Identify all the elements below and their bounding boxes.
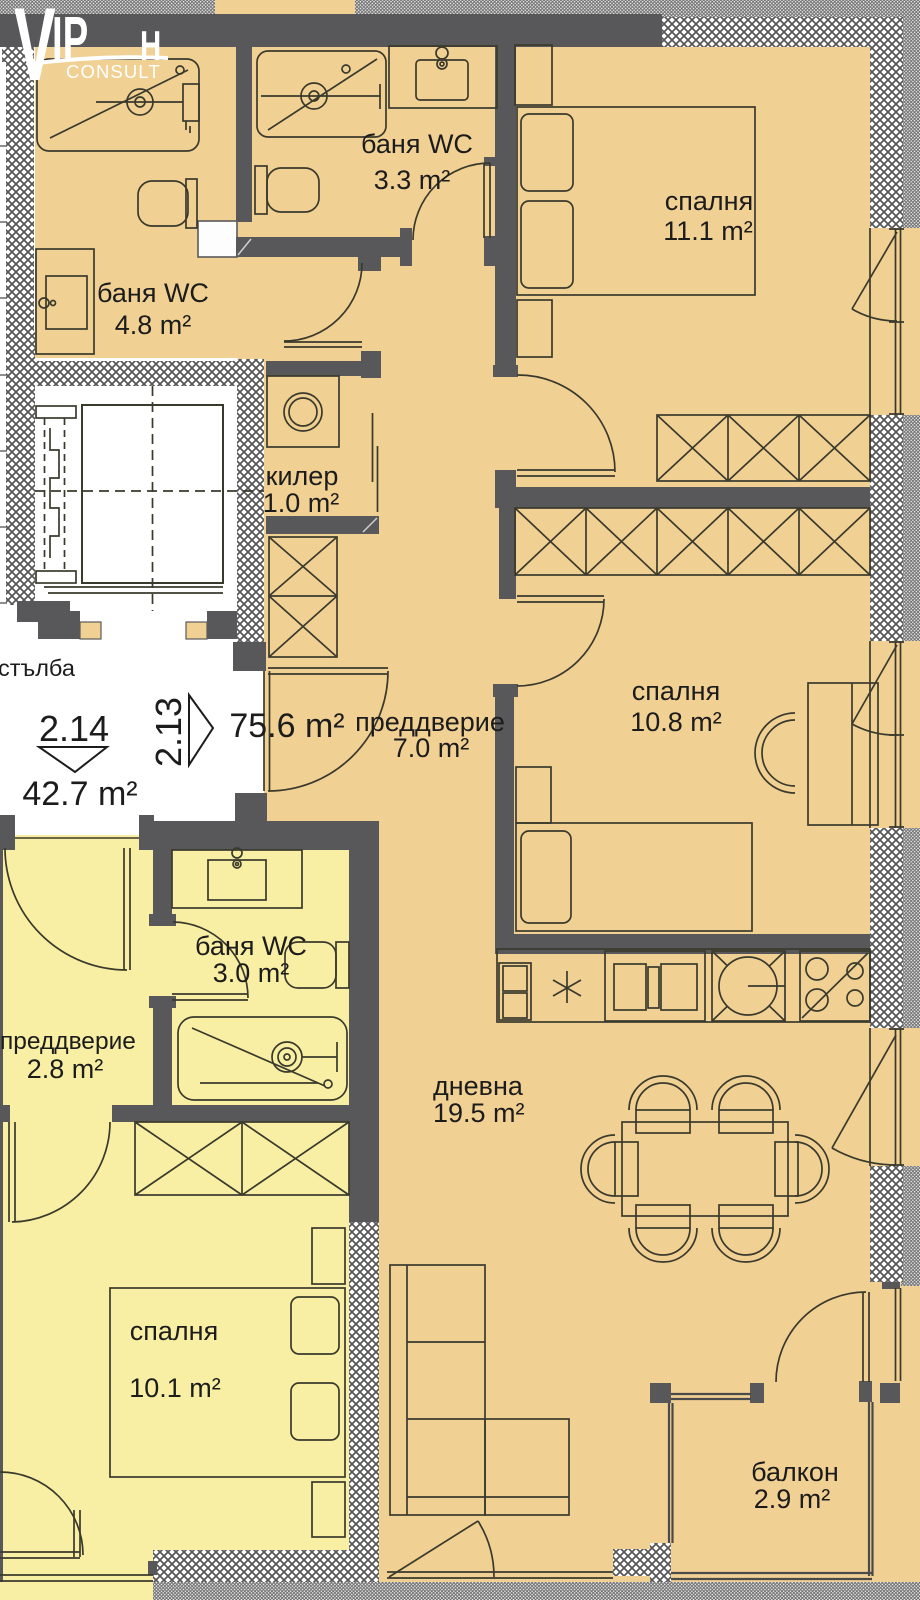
svg-text:75.6 m²: 75.6 m² bbox=[229, 707, 344, 745]
svg-text:3.3 m²: 3.3 m² bbox=[374, 165, 451, 195]
svg-text:спалня: спалня bbox=[130, 1316, 218, 1346]
svg-text:4.8 m²: 4.8 m² bbox=[115, 310, 192, 340]
svg-text:3.0 m²: 3.0 m² bbox=[213, 958, 290, 988]
svg-text:19.5 m²: 19.5 m² bbox=[433, 1098, 525, 1128]
svg-text:1.0 m²: 1.0 m² bbox=[263, 488, 340, 518]
svg-text:преддверие: преддверие bbox=[0, 1028, 136, 1055]
svg-text:2.9 m²: 2.9 m² bbox=[754, 1484, 831, 1514]
svg-text:42.7 m²: 42.7 m² bbox=[22, 775, 137, 813]
svg-text:спалня: спалня bbox=[632, 676, 720, 706]
svg-text:спалня: спалня bbox=[665, 186, 753, 216]
svg-text:2.8 m²: 2.8 m² bbox=[27, 1054, 104, 1084]
svg-text:дневна: дневна bbox=[433, 1071, 524, 1101]
svg-text:7.0 m²: 7.0 m² bbox=[393, 733, 470, 763]
svg-text:баня WC: баня WC bbox=[195, 931, 307, 961]
svg-text:стълба: стълба bbox=[0, 655, 76, 681]
svg-text:баня WC: баня WC bbox=[361, 129, 473, 159]
svg-text:баня WC: баня WC bbox=[97, 278, 209, 308]
svg-text:балкон: балкон bbox=[751, 1457, 839, 1487]
svg-text:2.13: 2.13 bbox=[148, 697, 189, 767]
svg-text:10.1 m²: 10.1 m² bbox=[129, 1373, 221, 1403]
svg-text:килер: килер bbox=[266, 461, 339, 491]
svg-text:CONSULT: CONSULT bbox=[66, 61, 161, 82]
svg-text:V: V bbox=[14, 0, 56, 103]
svg-text:11.1 m²: 11.1 m² bbox=[663, 216, 753, 246]
svg-text:2.14: 2.14 bbox=[39, 708, 109, 749]
svg-text:10.8 m²: 10.8 m² bbox=[630, 707, 722, 737]
